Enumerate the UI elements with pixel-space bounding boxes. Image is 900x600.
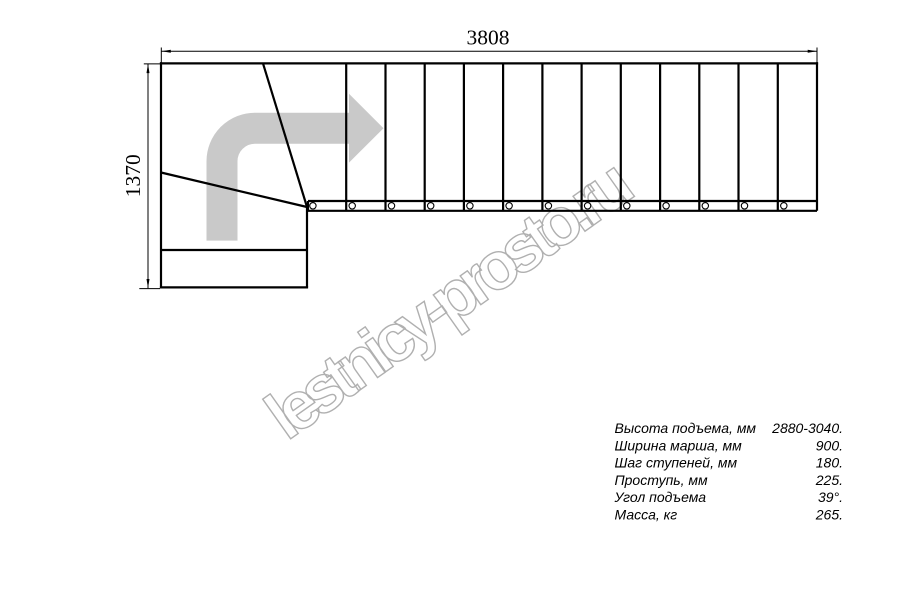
svg-text:1370: 1370 bbox=[121, 154, 145, 197]
svg-text:3808: 3808 bbox=[467, 26, 510, 50]
svg-text:39°.: 39°. bbox=[818, 489, 843, 505]
svg-text:900.: 900. bbox=[816, 437, 843, 453]
svg-text:180.: 180. bbox=[816, 455, 843, 471]
svg-text:Высота подъема, мм: Высота подъема, мм bbox=[615, 420, 757, 436]
svg-text:Масса, кг: Масса, кг bbox=[615, 506, 678, 522]
svg-text:Угол подъема: Угол подъема bbox=[614, 489, 707, 505]
svg-text:Ширина марша, мм: Ширина марша, мм bbox=[615, 437, 743, 453]
svg-text:265.: 265. bbox=[815, 506, 843, 522]
svg-text:Шаг ступеней, мм: Шаг ступеней, мм bbox=[615, 455, 738, 471]
svg-text:Проступь, мм: Проступь, мм bbox=[615, 472, 709, 488]
svg-text:225.: 225. bbox=[815, 472, 843, 488]
svg-text:2880-3040.: 2880-3040. bbox=[771, 420, 843, 436]
